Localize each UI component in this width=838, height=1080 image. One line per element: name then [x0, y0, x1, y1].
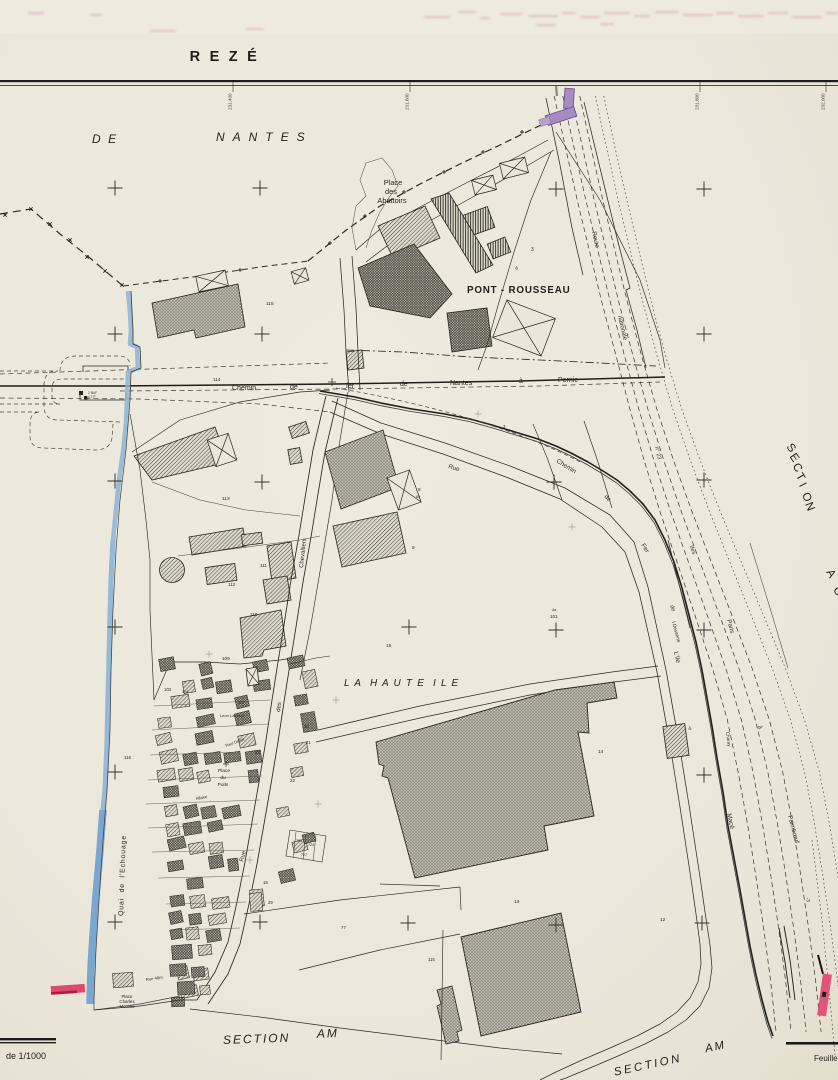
svg-text:110: 110 — [250, 612, 258, 617]
svg-text:15: 15 — [386, 643, 392, 649]
svg-text:Place: Place — [218, 768, 230, 774]
svg-text:Nantes: Nantes — [450, 380, 473, 387]
svg-text:112: 112 — [228, 582, 236, 587]
svg-text:232.000: 232.000 — [821, 93, 826, 110]
svg-text:724: 724 — [308, 843, 314, 847]
svg-text:231.400: 231.400 — [228, 93, 233, 110]
svg-text:4 2 P: 4 2 P — [88, 395, 95, 399]
svg-text:fer: fer — [346, 383, 355, 390]
svg-text:114: 114 — [213, 377, 221, 382]
svg-text:77: 77 — [341, 925, 346, 930]
svg-text:du: du — [220, 775, 226, 781]
svg-text:3: 3 — [531, 247, 534, 253]
svg-text:107: 107 — [238, 700, 246, 705]
svg-text:PONT - ROUSSEAU: PONT - ROUSSEAU — [467, 285, 570, 296]
svg-text:des: des — [385, 187, 397, 196]
svg-text:21: 21 — [306, 740, 311, 745]
svg-text:Pernic: Pernic — [558, 377, 578, 384]
svg-text:Place: Place — [384, 178, 403, 187]
svg-text:104: 104 — [182, 690, 188, 694]
svg-text:Feuille: Feuille — [814, 1054, 838, 1063]
svg-text:à: à — [519, 378, 523, 385]
svg-text:13: 13 — [514, 899, 520, 905]
svg-text:9: 9 — [412, 545, 415, 550]
svg-text:NANTES: NANTES — [216, 130, 313, 144]
svg-text:111: 111 — [260, 563, 267, 568]
svg-text:19: 19 — [263, 880, 268, 885]
svg-text:Leon Lacasse: Leon Lacasse — [220, 713, 246, 718]
svg-text:115: 115 — [266, 301, 274, 307]
svg-text:115: 115 — [428, 957, 435, 962]
svg-text:727: 727 — [301, 853, 307, 857]
svg-text:65: 65 — [416, 495, 420, 499]
svg-text:AM: AM — [316, 1026, 339, 1041]
svg-text:Abattoirs: Abattoirs — [377, 196, 406, 205]
svg-text:14: 14 — [598, 749, 604, 755]
svg-text:des: des — [276, 702, 283, 712]
svg-text:113: 113 — [222, 496, 230, 502]
svg-text:725: 725 — [296, 839, 302, 843]
svg-text:101: 101 — [550, 614, 558, 619]
svg-text:20: 20 — [304, 724, 309, 729]
svg-text:22: 22 — [290, 778, 295, 783]
svg-text:Chemin: Chemin — [232, 385, 256, 392]
svg-text:8: 8 — [418, 487, 421, 492]
svg-text:92: 92 — [255, 750, 260, 755]
svg-text:DE: DE — [92, 132, 124, 146]
svg-text:de: de — [400, 381, 408, 388]
svg-text:L A H A U T E I L E: L A H A U T E I L E — [344, 678, 459, 689]
svg-text:116: 116 — [124, 755, 132, 760]
svg-text:29: 29 — [268, 900, 273, 905]
svg-text:231.600: 231.600 — [405, 93, 410, 110]
svg-text:de: de — [290, 384, 298, 391]
svg-text:12: 12 — [660, 917, 666, 923]
svg-text:109: 109 — [222, 656, 230, 661]
svg-text:103: 103 — [164, 687, 172, 692]
svg-text:REZÉ: REZÉ — [190, 48, 267, 65]
svg-text:SECTION: SECTION — [223, 1031, 291, 1047]
svg-text:de 1/1000: de 1/1000 — [6, 1051, 46, 1061]
svg-text:Puits: Puits — [218, 782, 229, 788]
svg-text:231.800: 231.800 — [695, 93, 700, 110]
